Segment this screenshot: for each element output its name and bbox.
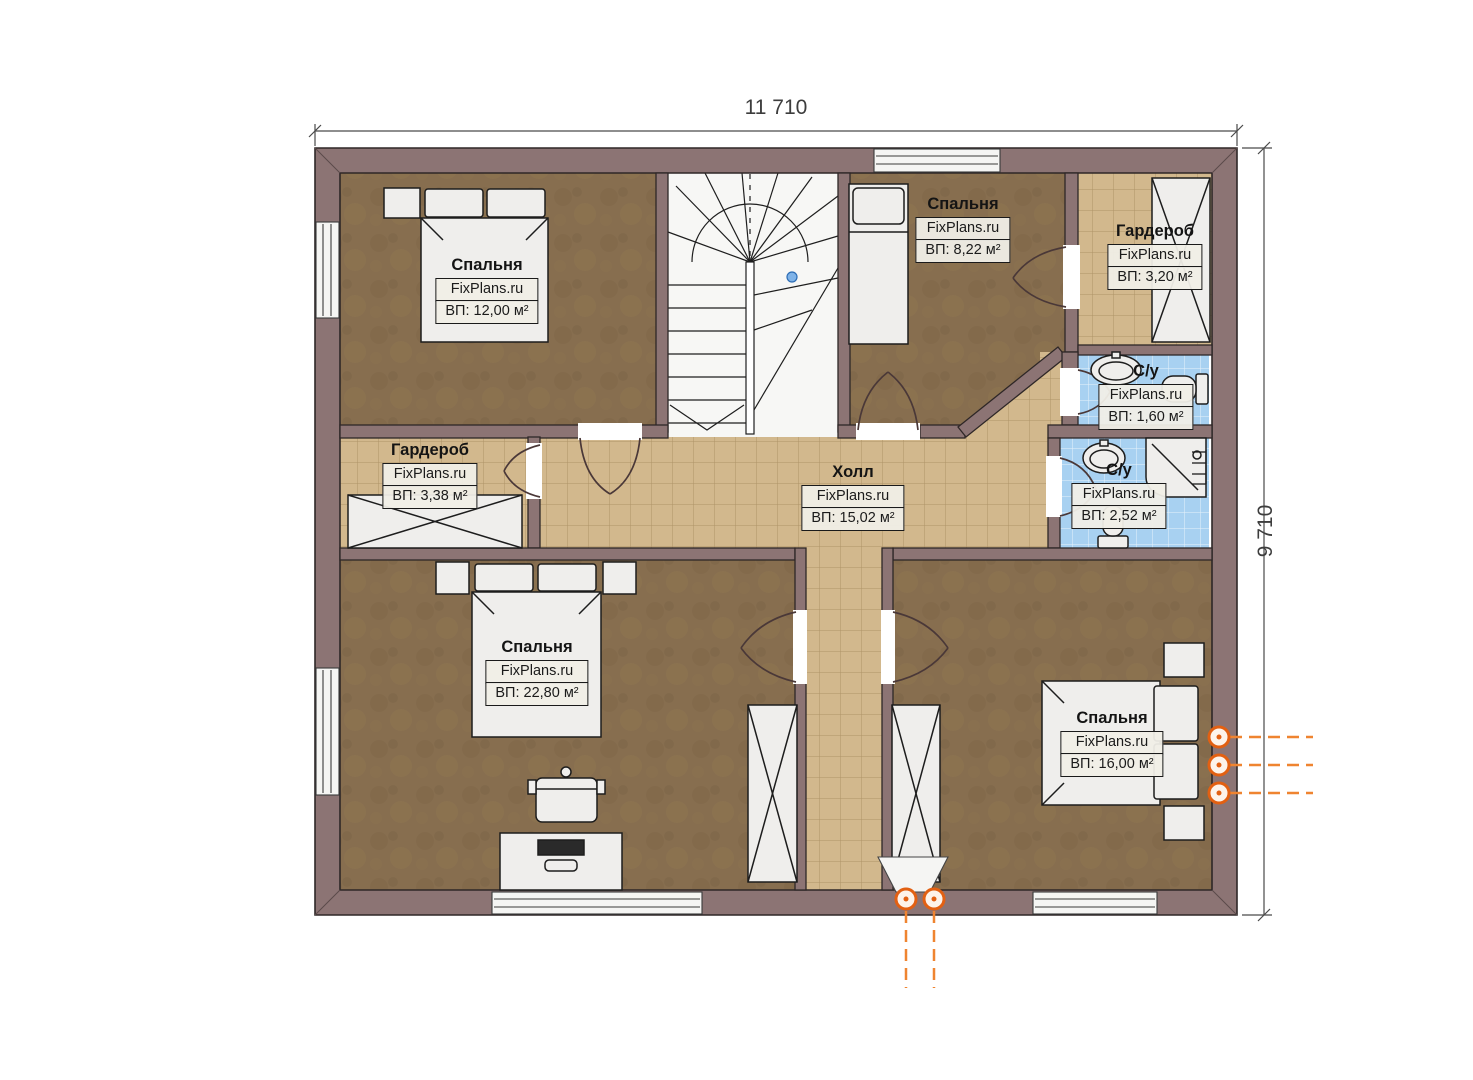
room-label-bedroom-top-middle: Спальня FixPlans.ru ВП: 8,22 м²: [915, 195, 1010, 263]
watermark: FixPlans.ru: [1107, 244, 1202, 268]
room-name: Спальня: [1076, 709, 1147, 728]
room-area: ВП: 3,38 м²: [382, 485, 477, 509]
watermark: FixPlans.ru: [915, 217, 1010, 241]
room-label-wardrobe-top-right: Гардероб FixPlans.ru ВП: 3,20 м²: [1107, 222, 1202, 290]
window-left-bottom: [316, 668, 339, 795]
window-left-top: [316, 222, 339, 318]
window-top: [874, 149, 1000, 172]
room-area: ВП: 15,02 м²: [801, 507, 904, 531]
room-label-bedroom-top-left: Спальня FixPlans.ru ВП: 12,00 м²: [435, 256, 538, 324]
room-name: Спальня: [501, 638, 572, 657]
room-name: Спальня: [927, 195, 998, 214]
room-area: ВП: 1,60 м²: [1098, 406, 1193, 430]
room-name: Гардероб: [391, 441, 469, 460]
room-label-bathroom-small: С/у FixPlans.ru ВП: 1,60 м²: [1098, 362, 1193, 430]
single-bed-icon: [849, 184, 908, 344]
room-name: Гардероб: [1116, 222, 1194, 241]
floor-plan-page: 11 710 9 710 Спальня FixPlans.ru ВП: 12,…: [0, 0, 1473, 1080]
dimension-height: 9 710: [1254, 505, 1278, 558]
room-name: С/у: [1106, 461, 1132, 480]
room-name: Спальня: [451, 256, 522, 275]
window-bottom-right: [1033, 892, 1157, 914]
room-label-bathroom-large: С/у FixPlans.ru ВП: 2,52 м²: [1071, 461, 1166, 529]
room-area: ВП: 2,52 м²: [1071, 505, 1166, 529]
room-area: ВП: 3,20 м²: [1107, 266, 1202, 290]
room-area: ВП: 22,80 м²: [485, 682, 588, 706]
room-label-wardrobe-left: Гардероб FixPlans.ru ВП: 3,38 м²: [382, 441, 477, 509]
wardrobe-icon: [748, 705, 797, 882]
watermark: FixPlans.ru: [801, 485, 904, 509]
watermark: FixPlans.ru: [485, 660, 588, 684]
dimension-width: 11 710: [745, 96, 808, 120]
watermark: FixPlans.ru: [1098, 384, 1193, 408]
desk-icon: [500, 833, 622, 890]
room-label-hall: Холл FixPlans.ru ВП: 15,02 м²: [801, 463, 904, 531]
window-bottom-left: [492, 892, 702, 914]
watermark: FixPlans.ru: [1071, 483, 1166, 507]
floor-plan-canvas: [0, 0, 1473, 1080]
room-name: С/у: [1133, 362, 1159, 381]
watermark: FixPlans.ru: [382, 463, 477, 487]
room-area: ВП: 16,00 м²: [1060, 753, 1163, 777]
room-label-bedroom-bottom-right: Спальня FixPlans.ru ВП: 16,00 м²: [1060, 709, 1163, 777]
room-name: Холл: [832, 463, 873, 482]
watermark: FixPlans.ru: [435, 278, 538, 302]
watermark: FixPlans.ru: [1060, 731, 1163, 755]
room-label-bedroom-bottom-left: Спальня FixPlans.ru ВП: 22,80 м²: [485, 638, 588, 706]
room-area: ВП: 12,00 м²: [435, 300, 538, 324]
room-area: ВП: 8,22 м²: [915, 239, 1010, 263]
wardrobe-icon: [892, 705, 940, 882]
